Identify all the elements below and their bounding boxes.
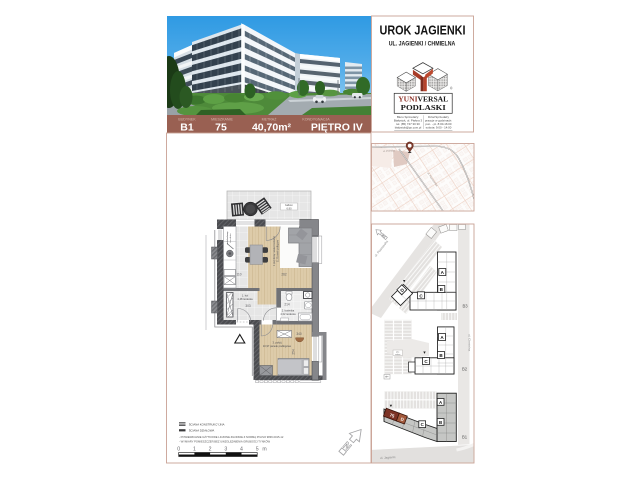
svg-text:4: 4 — [240, 447, 243, 453]
svg-text:110: 110 — [236, 273, 241, 277]
svg-text:303: 303 — [245, 304, 251, 308]
svg-text:bialystok@yp.com.pl: bialystok@yp.com.pl — [395, 126, 422, 130]
svg-text:B3: B3 — [463, 304, 469, 309]
svg-text:PIĘTRO IV: PIĘTRO IV — [311, 122, 363, 134]
svg-text:sobota: 9:00 - 14:00: sobota: 9:00 - 14:00 — [426, 126, 452, 130]
svg-text:terakota: terakota — [229, 233, 232, 243]
svg-text:340: 340 — [296, 332, 302, 336]
svg-text:254: 254 — [292, 349, 296, 355]
svg-text:m: m — [262, 447, 266, 453]
svg-text:B2: B2 — [462, 367, 468, 372]
svg-text:PODLASKI: PODLASKI — [401, 103, 446, 112]
svg-text:1: 1 — [193, 447, 196, 453]
svg-text:ŚCIANA DZIAŁOWA: ŚCIANA DZIAŁOWA — [189, 428, 215, 433]
svg-text:262: 262 — [281, 273, 287, 277]
svg-text:2: 2 — [209, 447, 212, 453]
svg-text:UL. JAGIENKI / CHMIELNA: UL. JAGIENKI / CHMIELNA — [389, 40, 456, 47]
svg-text:5: 5 — [256, 447, 259, 453]
svg-text:75: 75 — [215, 122, 227, 134]
svg-text:ul. Chmielna: ul. Chmielna — [468, 334, 472, 351]
svg-text:B1: B1 — [180, 122, 194, 134]
svg-text:zabaw: zabaw — [395, 354, 401, 356]
svg-text:214: 214 — [284, 303, 290, 307]
svg-text:40,70m²: 40,70m² — [252, 122, 292, 134]
svg-text:4,48 terakota: 4,48 terakota — [237, 297, 253, 301]
svg-text:UROK JAGIENKI: UROK JAGIENKI — [380, 24, 466, 38]
svg-text:21,33 panele podłogowe: 21,33 panele podłogowe — [276, 239, 279, 262]
svg-text:ul. Jagienki: ul. Jagienki — [380, 455, 396, 460]
svg-text:ŚCIANA KONSTRUKCYJNA: ŚCIANA KONSTRUKCYJNA — [189, 421, 225, 426]
svg-text:6,90: 6,90 — [286, 206, 292, 210]
svg-text:0: 0 — [177, 447, 180, 453]
svg-text:B: B — [439, 420, 442, 425]
svg-text:aneks kuchenny: aneks kuchenny — [227, 231, 229, 245]
svg-text:3: 3 — [224, 447, 227, 453]
svg-text:10,97 panele podłogowe: 10,97 panele podłogowe — [263, 344, 292, 348]
svg-text:4,02 terakota: 4,02 terakota — [280, 312, 296, 316]
svg-text:B1: B1 — [462, 435, 468, 440]
